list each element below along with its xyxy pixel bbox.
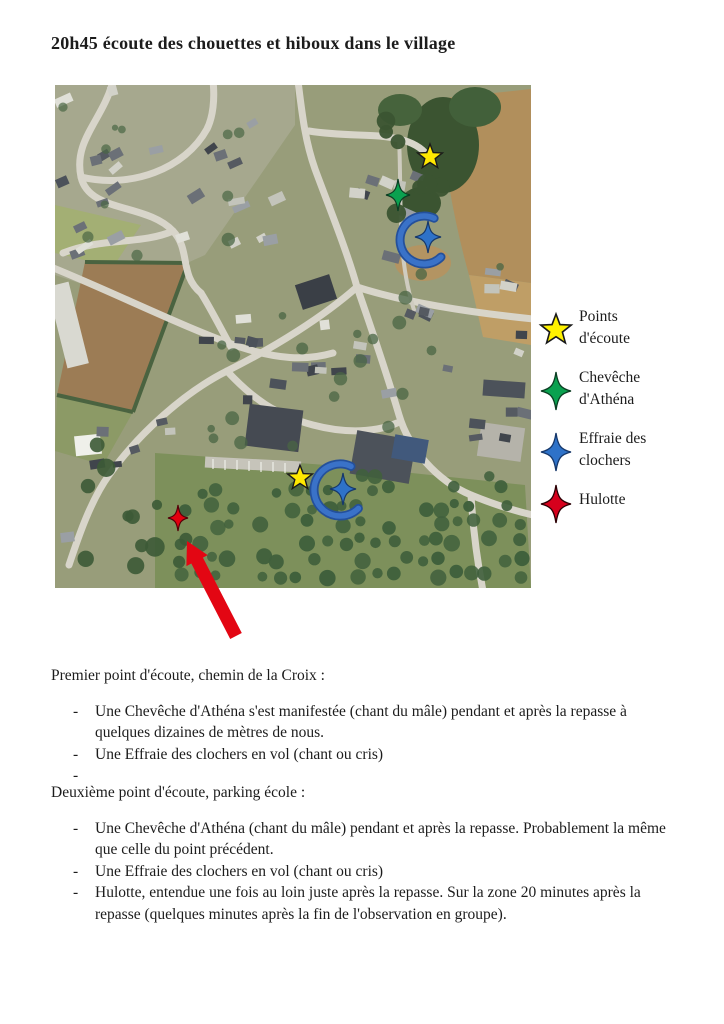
bullet-dash: -: [73, 818, 78, 840]
observation-notes: Premier point d'écoute, chemin de la Cro…: [51, 665, 673, 942]
cheveche-athena-star-icon: [534, 368, 578, 414]
map-legend: Points d'écoute Chevêche d'Athéna Effrai…: [533, 304, 723, 539]
bullet-text: Une Chevêche d'Athéna s'est manifestée (…: [95, 703, 627, 742]
list-item: -Une Effraie des clochers en vol (chant …: [51, 744, 673, 766]
bullet-dash: -: [73, 765, 78, 787]
legend-label: Effraie des clochers: [579, 426, 646, 472]
legend-item-points-ecoute: Points d'écoute: [533, 304, 723, 353]
list-item: -Hulotte, entendue une fois au loin just…: [51, 882, 673, 925]
bullet-text: Hulotte, entendue une fois au loin juste…: [95, 884, 641, 923]
bullet-text: Une Effraie des clochers en vol (chant o…: [95, 863, 383, 880]
document-page: 20h45 écoute des chouettes et hiboux dan…: [0, 0, 724, 1024]
bullet-text: Une Chevêche d'Athéna (chant du mâle) pe…: [95, 820, 666, 859]
legend-label: Points d'écoute: [579, 304, 630, 350]
hulotte-star-icon: [534, 481, 578, 527]
bullet-dash: -: [73, 861, 78, 883]
bullet-dash: -: [73, 701, 78, 723]
legend-label: Hulotte: [579, 487, 626, 511]
bullet-dash: -: [73, 882, 78, 904]
page-title: 20h45 écoute des chouettes et hiboux dan…: [51, 33, 455, 54]
section-deuxieme-point: Deuxième point d'écoute, parking école :…: [51, 782, 673, 925]
bullet-list: -Une Chevêche d'Athéna (chant du mâle) p…: [51, 818, 673, 926]
effraie-clochers-star-icon: [534, 429, 578, 475]
legend-item-cheveche-athena: Chevêche d'Athéna: [533, 365, 723, 414]
section-heading: Deuxième point d'écoute, parking école :: [51, 782, 673, 804]
bullet-dash: -: [73, 744, 78, 766]
section-heading: Premier point d'écoute, chemin de la Cro…: [51, 665, 673, 687]
legend-item-effraie-clochers: Effraie des clochers: [533, 426, 723, 475]
legend-label: Chevêche d'Athéna: [579, 365, 640, 411]
points-ecoute-star-icon: [534, 307, 578, 353]
bullet-text: Une Effraie des clochers en vol (chant o…: [95, 746, 383, 763]
section-premier-point: Premier point d'écoute, chemin de la Cro…: [51, 665, 673, 765]
village-aerial-map: [55, 85, 531, 588]
satellite-imagery: [55, 85, 531, 588]
legend-item-hulotte: Hulotte: [533, 487, 723, 527]
list-item: -Une Chevêche d'Athéna s'est manifestée …: [51, 701, 673, 744]
list-item: -Une Chevêche d'Athéna (chant du mâle) p…: [51, 818, 673, 861]
list-item: -Une Effraie des clochers en vol (chant …: [51, 861, 673, 883]
bullet-list: -Une Chevêche d'Athéna s'est manifestée …: [51, 701, 673, 766]
